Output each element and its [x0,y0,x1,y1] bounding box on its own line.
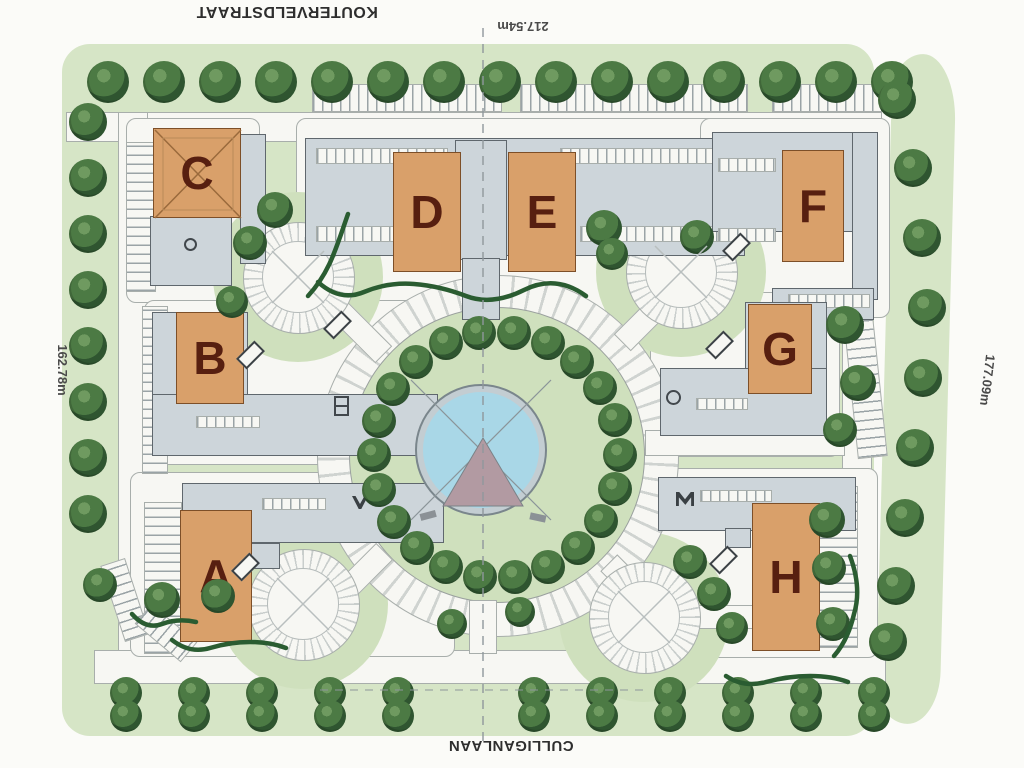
tree-icon [680,220,714,254]
tree-icon [362,404,396,438]
tree-icon [255,61,297,103]
tree-icon [216,286,248,318]
tree-icon [399,345,433,379]
tree-icon [376,372,410,406]
tree-icon [591,61,633,103]
tree-icon [423,61,465,103]
tree-icon [535,61,577,103]
tree-icon [69,495,107,533]
tree-icon [598,472,632,506]
tree-icon [759,61,801,103]
tree-icon [561,531,595,565]
street-label-top: KOUTERVELDSTRAAT [167,0,407,20]
tree-icon [816,607,850,641]
tree-icon [69,383,107,421]
tree-icon [896,429,934,467]
tree-icon [908,289,946,327]
tree-icon [703,61,745,103]
tree-icon [429,550,463,584]
tree-icon [110,700,142,732]
tree-icon [314,700,346,732]
tree-icon [257,192,293,228]
tree-icon [894,149,932,187]
tree-icon [584,504,618,538]
tree-icon [531,326,565,360]
tree-icon [840,365,876,401]
tree-icon [603,438,637,472]
tree-icon [886,499,924,537]
tree-icon [463,560,497,594]
tree-icon [429,326,463,360]
tree-icon [69,103,107,141]
tree-icon [377,505,411,539]
tree-icon [311,61,353,103]
tree-icon [233,226,267,260]
tree-icon [878,81,916,119]
tree-icon [716,612,748,644]
tree-icon [69,215,107,253]
tree-icon [505,597,535,627]
tree-icon [904,359,942,397]
tree-icon [858,700,890,732]
tree-icon [826,306,864,344]
tree-icon [201,579,235,613]
tree-icon [199,61,241,103]
dimension-top: 217.54m [468,18,578,34]
tree-icon [673,545,707,579]
tree-icon [143,61,185,103]
tree-icon [69,439,107,477]
tree-icon [697,577,731,611]
tree-icon [903,219,941,257]
tree-icon [790,700,822,732]
tree-icon [362,473,396,507]
tree-icon [479,61,521,103]
tree-icon [498,560,532,594]
tree-icon [497,316,531,350]
trees-layer [0,0,1024,768]
tree-icon [83,568,117,602]
tree-icon [518,700,550,732]
tree-icon [382,700,414,732]
tree-icon [654,700,686,732]
tree-icon [178,700,210,732]
tree-icon [69,271,107,309]
tree-icon [823,413,857,447]
tree-icon [877,567,915,605]
tree-icon [367,61,409,103]
tree-icon [812,551,846,585]
tree-icon [462,316,496,350]
tree-icon [400,531,434,565]
dimension-left: 162.78m [54,335,70,405]
tree-icon [69,327,107,365]
tree-icon [598,403,632,437]
tree-icon [144,582,180,618]
tree-icon [87,61,129,103]
tree-icon [722,700,754,732]
tree-icon [596,238,628,270]
tree-icon [583,371,617,405]
street-label-bottom: CULLIGANLAAN [396,734,626,754]
tree-icon [586,700,618,732]
tree-icon [809,502,845,538]
tree-icon [531,550,565,584]
tree-icon [246,700,278,732]
tree-icon [815,61,857,103]
tree-icon [437,609,467,639]
tree-icon [69,159,107,197]
tree-icon [647,61,689,103]
tree-icon [869,623,907,661]
tree-icon [357,438,391,472]
site-plan: C D E F B G A H [0,0,1024,768]
